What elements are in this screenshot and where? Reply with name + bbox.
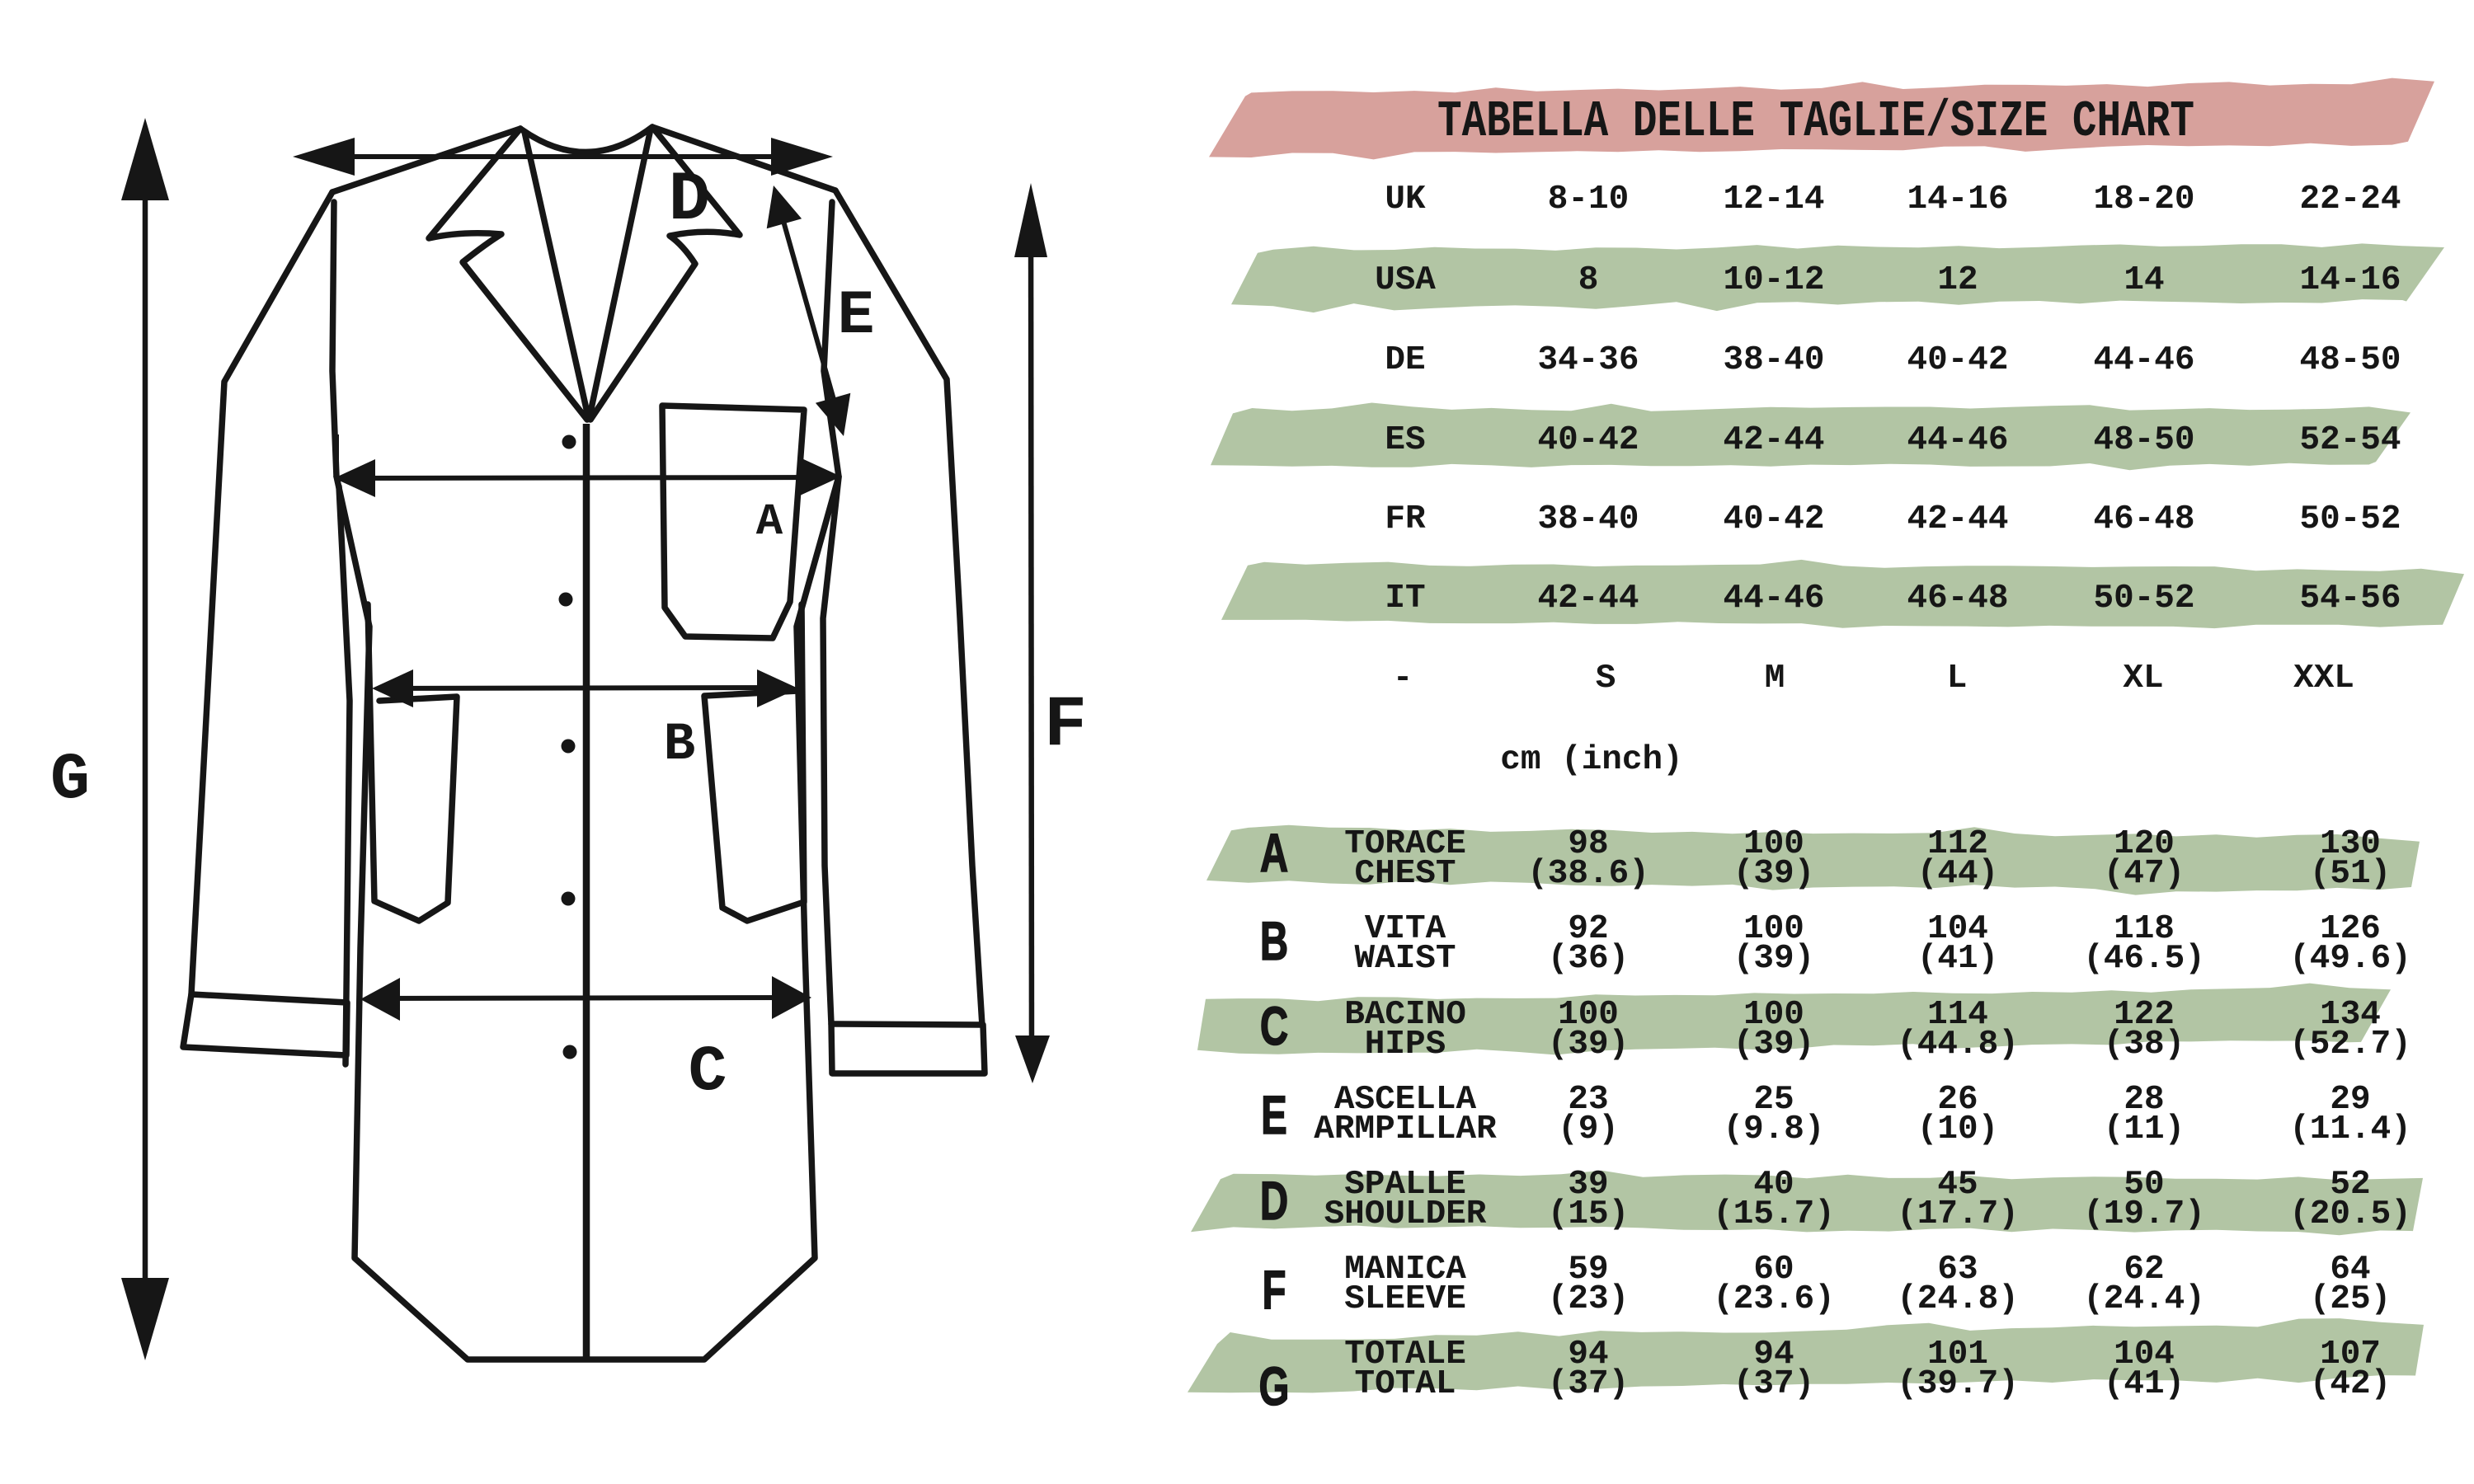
svg-text:(44.8): (44.8): [1897, 1026, 2019, 1064]
svg-text:(51): (51): [2310, 855, 2391, 893]
svg-text:(37): (37): [1548, 1365, 1629, 1403]
svg-text:34-36: 34-36: [1537, 341, 1639, 379]
svg-text:A: A: [756, 497, 783, 547]
svg-text:S: S: [1596, 660, 1616, 697]
svg-text:D: D: [1260, 1171, 1288, 1231]
svg-text:(39): (39): [1733, 1026, 1814, 1064]
svg-text:ARMPILLAR: ARMPILLAR: [1314, 1111, 1497, 1148]
svg-text:B: B: [1260, 911, 1288, 971]
svg-text:HIPS: HIPS: [1365, 1026, 1446, 1064]
svg-text:48-50: 48-50: [2299, 341, 2401, 379]
svg-text:G: G: [50, 743, 90, 818]
svg-text:(38.6): (38.6): [1527, 855, 1649, 893]
svg-text:50-52: 50-52: [2299, 500, 2401, 538]
svg-text:22-24: 22-24: [2299, 181, 2401, 218]
svg-text:(10): (10): [1917, 1111, 1998, 1148]
svg-text:C: C: [689, 1036, 727, 1109]
svg-text:42-44: 42-44: [1537, 580, 1639, 618]
svg-text:(9.8): (9.8): [1723, 1111, 1824, 1148]
svg-text:(15.7): (15.7): [1713, 1195, 1835, 1233]
svg-text:B: B: [664, 716, 695, 775]
svg-text:(41): (41): [2104, 1365, 2185, 1403]
svg-text:XL: XL: [2123, 660, 2163, 697]
svg-text:(24.4): (24.4): [2083, 1280, 2205, 1318]
svg-text:14-16: 14-16: [2299, 261, 2401, 299]
svg-text:(24.8): (24.8): [1897, 1280, 2019, 1318]
svg-text:(39): (39): [1733, 940, 1814, 978]
svg-text:SHOULDER: SHOULDER: [1324, 1195, 1487, 1233]
svg-text:(39): (39): [1548, 1026, 1629, 1064]
svg-text:UK: UK: [1385, 181, 1426, 218]
svg-text:C: C: [1260, 996, 1288, 1056]
svg-text:USA: USA: [1375, 261, 1436, 299]
svg-text:(42): (42): [2310, 1365, 2391, 1403]
svg-text:(11): (11): [2104, 1111, 2185, 1148]
svg-text:M: M: [1765, 660, 1785, 697]
svg-text:(25): (25): [2310, 1280, 2391, 1318]
svg-text:14: 14: [2124, 261, 2164, 299]
svg-text:(11.4): (11.4): [2289, 1111, 2411, 1148]
svg-text:42-44: 42-44: [1723, 421, 1824, 459]
svg-text:(19.7): (19.7): [2083, 1195, 2205, 1233]
svg-text:WAIST: WAIST: [1354, 940, 1456, 978]
svg-text:(23): (23): [1548, 1280, 1629, 1318]
svg-text:E: E: [837, 281, 874, 351]
svg-text:46-48: 46-48: [1907, 580, 2008, 618]
svg-text:XXL: XXL: [2293, 660, 2354, 697]
svg-text:40-42: 40-42: [1907, 341, 2008, 379]
svg-text:TABELLA DELLE TAGLIE/SIZE CHAR: TABELLA DELLE TAGLIE/SIZE CHART: [1437, 92, 2194, 151]
svg-text:38-40: 38-40: [1723, 341, 1824, 379]
svg-text:FR: FR: [1385, 500, 1426, 538]
svg-text:D: D: [669, 162, 710, 240]
svg-text:(37): (37): [1733, 1365, 1814, 1403]
svg-text:(49.6): (49.6): [2289, 940, 2411, 978]
svg-text:F: F: [1044, 686, 1087, 767]
svg-text:ES: ES: [1385, 421, 1425, 459]
svg-text:A: A: [1260, 823, 1288, 883]
svg-text:(39): (39): [1733, 855, 1814, 893]
svg-text:-: -: [1393, 660, 1413, 697]
svg-text:DE: DE: [1385, 341, 1425, 379]
svg-text:F: F: [1262, 1260, 1286, 1320]
svg-text:12: 12: [1937, 261, 1978, 299]
svg-text:(46.5): (46.5): [2083, 940, 2205, 978]
svg-text:(9): (9): [1558, 1111, 1619, 1148]
svg-text:(47): (47): [2104, 855, 2185, 893]
svg-text:(39.7): (39.7): [1897, 1365, 2019, 1403]
svg-text:L: L: [1947, 660, 1968, 697]
svg-text:44-46: 44-46: [1907, 421, 2008, 459]
svg-text:G: G: [1259, 1356, 1290, 1416]
svg-text:44-46: 44-46: [1723, 580, 1824, 618]
svg-text:18-20: 18-20: [2093, 181, 2194, 218]
svg-text:40-42: 40-42: [1537, 421, 1639, 459]
svg-text:SLEEVE: SLEEVE: [1344, 1280, 1466, 1318]
svg-text:14-16: 14-16: [1907, 181, 2008, 218]
svg-text:(23.6): (23.6): [1713, 1280, 1835, 1318]
svg-text:(20.5): (20.5): [2289, 1195, 2411, 1233]
svg-text:(15): (15): [1548, 1195, 1629, 1233]
svg-text:8: 8: [1578, 261, 1599, 299]
svg-text:(17.7): (17.7): [1897, 1195, 2019, 1233]
svg-text:IT: IT: [1385, 580, 1425, 618]
svg-text:(38): (38): [2104, 1026, 2185, 1064]
svg-text:44-46: 44-46: [2093, 341, 2194, 379]
svg-text:TOTAL: TOTAL: [1354, 1365, 1456, 1403]
svg-text:8-10: 8-10: [1548, 181, 1629, 218]
svg-text:(41): (41): [1917, 940, 1998, 978]
svg-text:46-48: 46-48: [2093, 500, 2194, 538]
svg-text:E: E: [1261, 1085, 1287, 1145]
svg-text:(36): (36): [1548, 940, 1629, 978]
svg-text:42-44: 42-44: [1907, 500, 2008, 538]
svg-text:(52.7): (52.7): [2289, 1026, 2411, 1064]
svg-text:50-52: 50-52: [2093, 580, 2194, 618]
svg-text:CHEST: CHEST: [1354, 855, 1456, 893]
svg-text:(44): (44): [1917, 855, 1998, 893]
svg-text:cm (inch): cm (inch): [1500, 741, 1682, 779]
svg-text:52-54: 52-54: [2299, 421, 2401, 459]
svg-text:48-50: 48-50: [2093, 421, 2194, 459]
svg-text:12-14: 12-14: [1723, 181, 1824, 218]
svg-text:10-12: 10-12: [1723, 261, 1824, 299]
svg-text:38-40: 38-40: [1537, 500, 1639, 538]
svg-text:54-56: 54-56: [2299, 580, 2401, 618]
svg-text:40-42: 40-42: [1723, 500, 1824, 538]
